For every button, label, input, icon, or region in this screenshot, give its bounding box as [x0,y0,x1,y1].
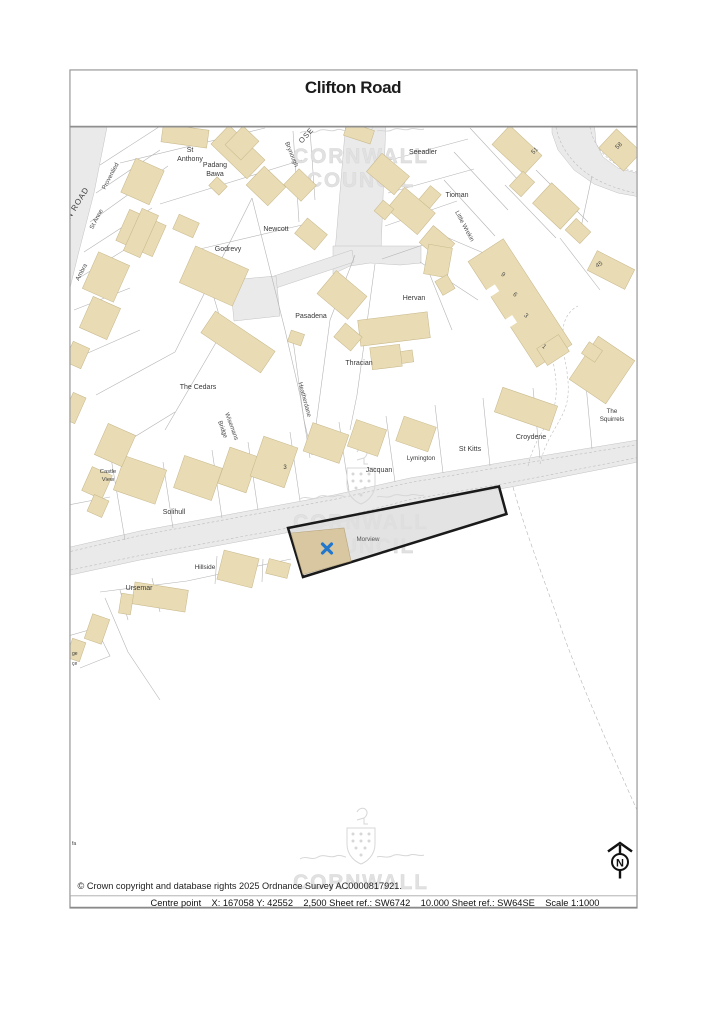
svg-text:ge: ge [72,651,78,657]
svg-text:Ursemar: Ursemar [126,585,154,592]
svg-text:çe: çe [72,661,78,667]
svg-text:Hillside: Hillside [195,564,216,571]
svg-text:Thracian: Thracian [345,360,372,367]
svg-text:Bawa: Bawa [206,171,224,178]
svg-text:Hervan: Hervan [403,295,426,302]
svg-text:Clifton Road: Clifton Road [305,78,401,97]
svg-text:Godrevy: Godrevy [215,246,242,253]
svg-text:Padang: Padang [203,162,227,169]
svg-text:Lymington: Lymington [407,455,436,462]
svg-text:Solihull: Solihull [163,509,186,516]
svg-text:Centre point X: 167058 Y: 4: Centre point X: 167058 Y: 42552 2,500 Sh… [151,898,600,908]
svg-text:Jacquan: Jacquan [366,467,393,474]
svg-text:Newcott: Newcott [263,226,288,233]
svg-text:Morview: Morview [356,536,380,543]
svg-text:Seeadler: Seeadler [409,149,438,156]
svg-text:N: N [616,857,624,869]
svg-text:© Crown copyright and database: © Crown copyright and database rights 20… [78,881,402,891]
svg-text:Croydene: Croydene [516,434,546,441]
svg-text:St Kitts: St Kitts [459,446,482,453]
svg-text:Squirrels: Squirrels [600,416,624,423]
svg-text:Anthony: Anthony [177,156,203,163]
svg-text:View: View [102,477,115,483]
svg-text:Castle: Castle [100,469,116,475]
svg-text:Tioman: Tioman [445,192,468,199]
svg-text:Pasadena: Pasadena [295,313,327,320]
svg-text:The Cedars: The Cedars [180,384,217,391]
svg-text:fa: fa [72,841,76,847]
svg-text:The: The [607,408,618,415]
svg-text:St: St [187,147,194,154]
